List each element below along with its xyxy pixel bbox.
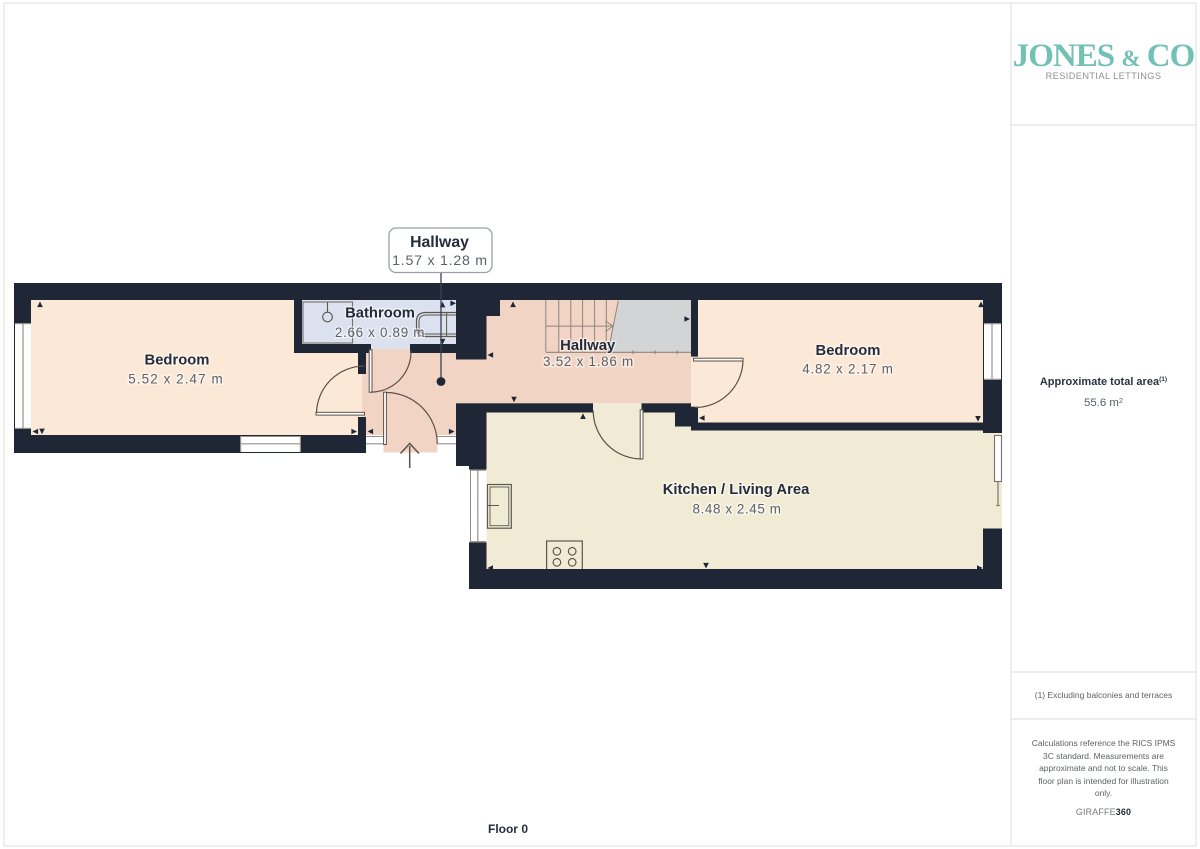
svg-text:5.52 x 2.47 m: 5.52 x 2.47 m <box>128 372 223 387</box>
svg-text:Hallway: Hallway <box>560 338 616 354</box>
svg-text:Bedroom: Bedroom <box>145 353 210 369</box>
svg-text:4.82 x 2.17 m: 4.82 x 2.17 m <box>802 362 894 377</box>
svg-text:8.48 x 2.45 m: 8.48 x 2.45 m <box>693 502 782 517</box>
svg-text:1.57 x 1.28 m: 1.57 x 1.28 m <box>392 253 488 269</box>
svg-text:3.52 x 1.86 m: 3.52 x 1.86 m <box>543 354 634 369</box>
svg-text:2.66 x 0.89 m: 2.66 x 0.89 m <box>335 325 425 340</box>
svg-text:Bedroom: Bedroom <box>816 343 881 359</box>
svg-text:Floor 0: Floor 0 <box>488 822 528 836</box>
svg-text:Bathroom: Bathroom <box>345 305 415 321</box>
svg-text:Kitchen / Living Area: Kitchen / Living Area <box>663 482 810 498</box>
svg-text:Hallway: Hallway <box>410 234 469 251</box>
